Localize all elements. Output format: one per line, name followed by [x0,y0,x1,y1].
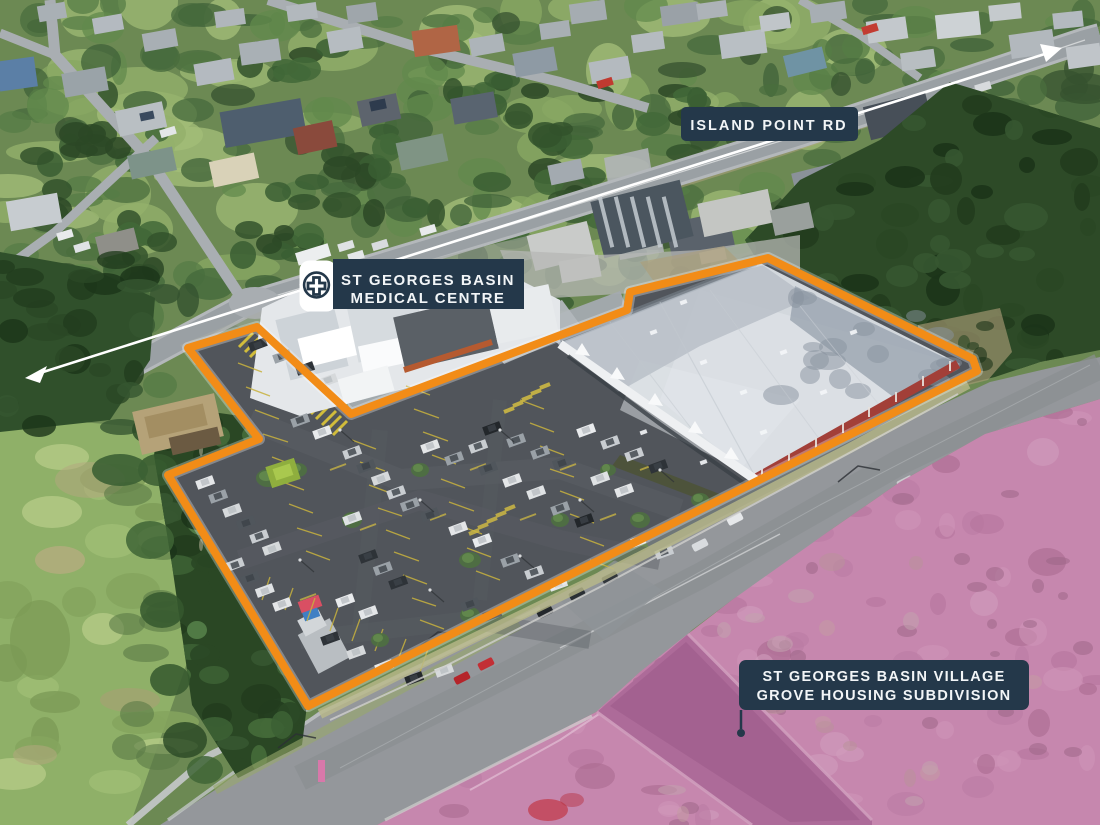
svg-text:GROVE HOUSING SUBDIVISION: GROVE HOUSING SUBDIVISION [757,688,1012,704]
svg-text:MEDICAL CENTRE: MEDICAL CENTRE [351,290,506,307]
svg-text:ISLAND POINT RD: ISLAND POINT RD [690,118,847,134]
svg-text:ST GEORGES BASIN VILLAGE: ST GEORGES BASIN VILLAGE [762,669,1005,685]
svg-text:ST GEORGES BASIN: ST GEORGES BASIN [341,272,515,289]
